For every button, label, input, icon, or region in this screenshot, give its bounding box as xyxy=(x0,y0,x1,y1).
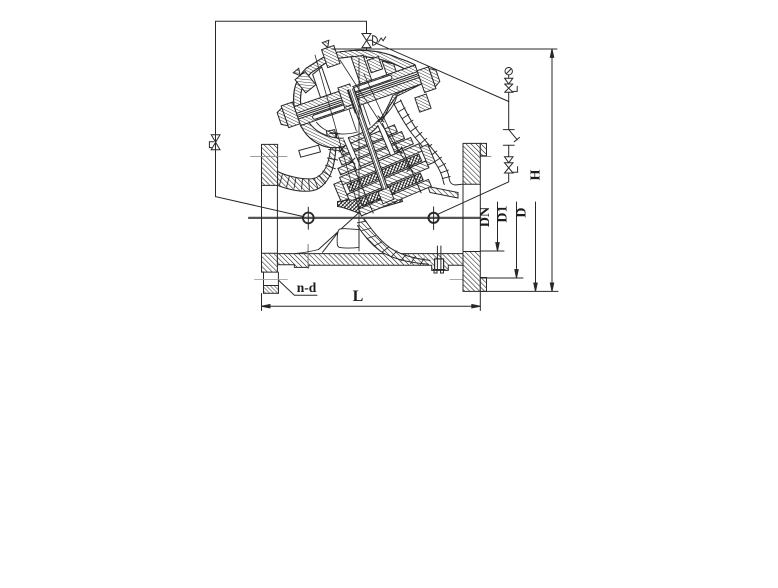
svg-text:DN: DN xyxy=(478,207,493,227)
svg-text:D1: D1 xyxy=(496,205,511,222)
svg-text:D: D xyxy=(515,207,530,217)
svg-text:H: H xyxy=(529,169,544,180)
svg-text:n-d: n-d xyxy=(297,280,317,295)
svg-text:L: L xyxy=(353,288,364,305)
